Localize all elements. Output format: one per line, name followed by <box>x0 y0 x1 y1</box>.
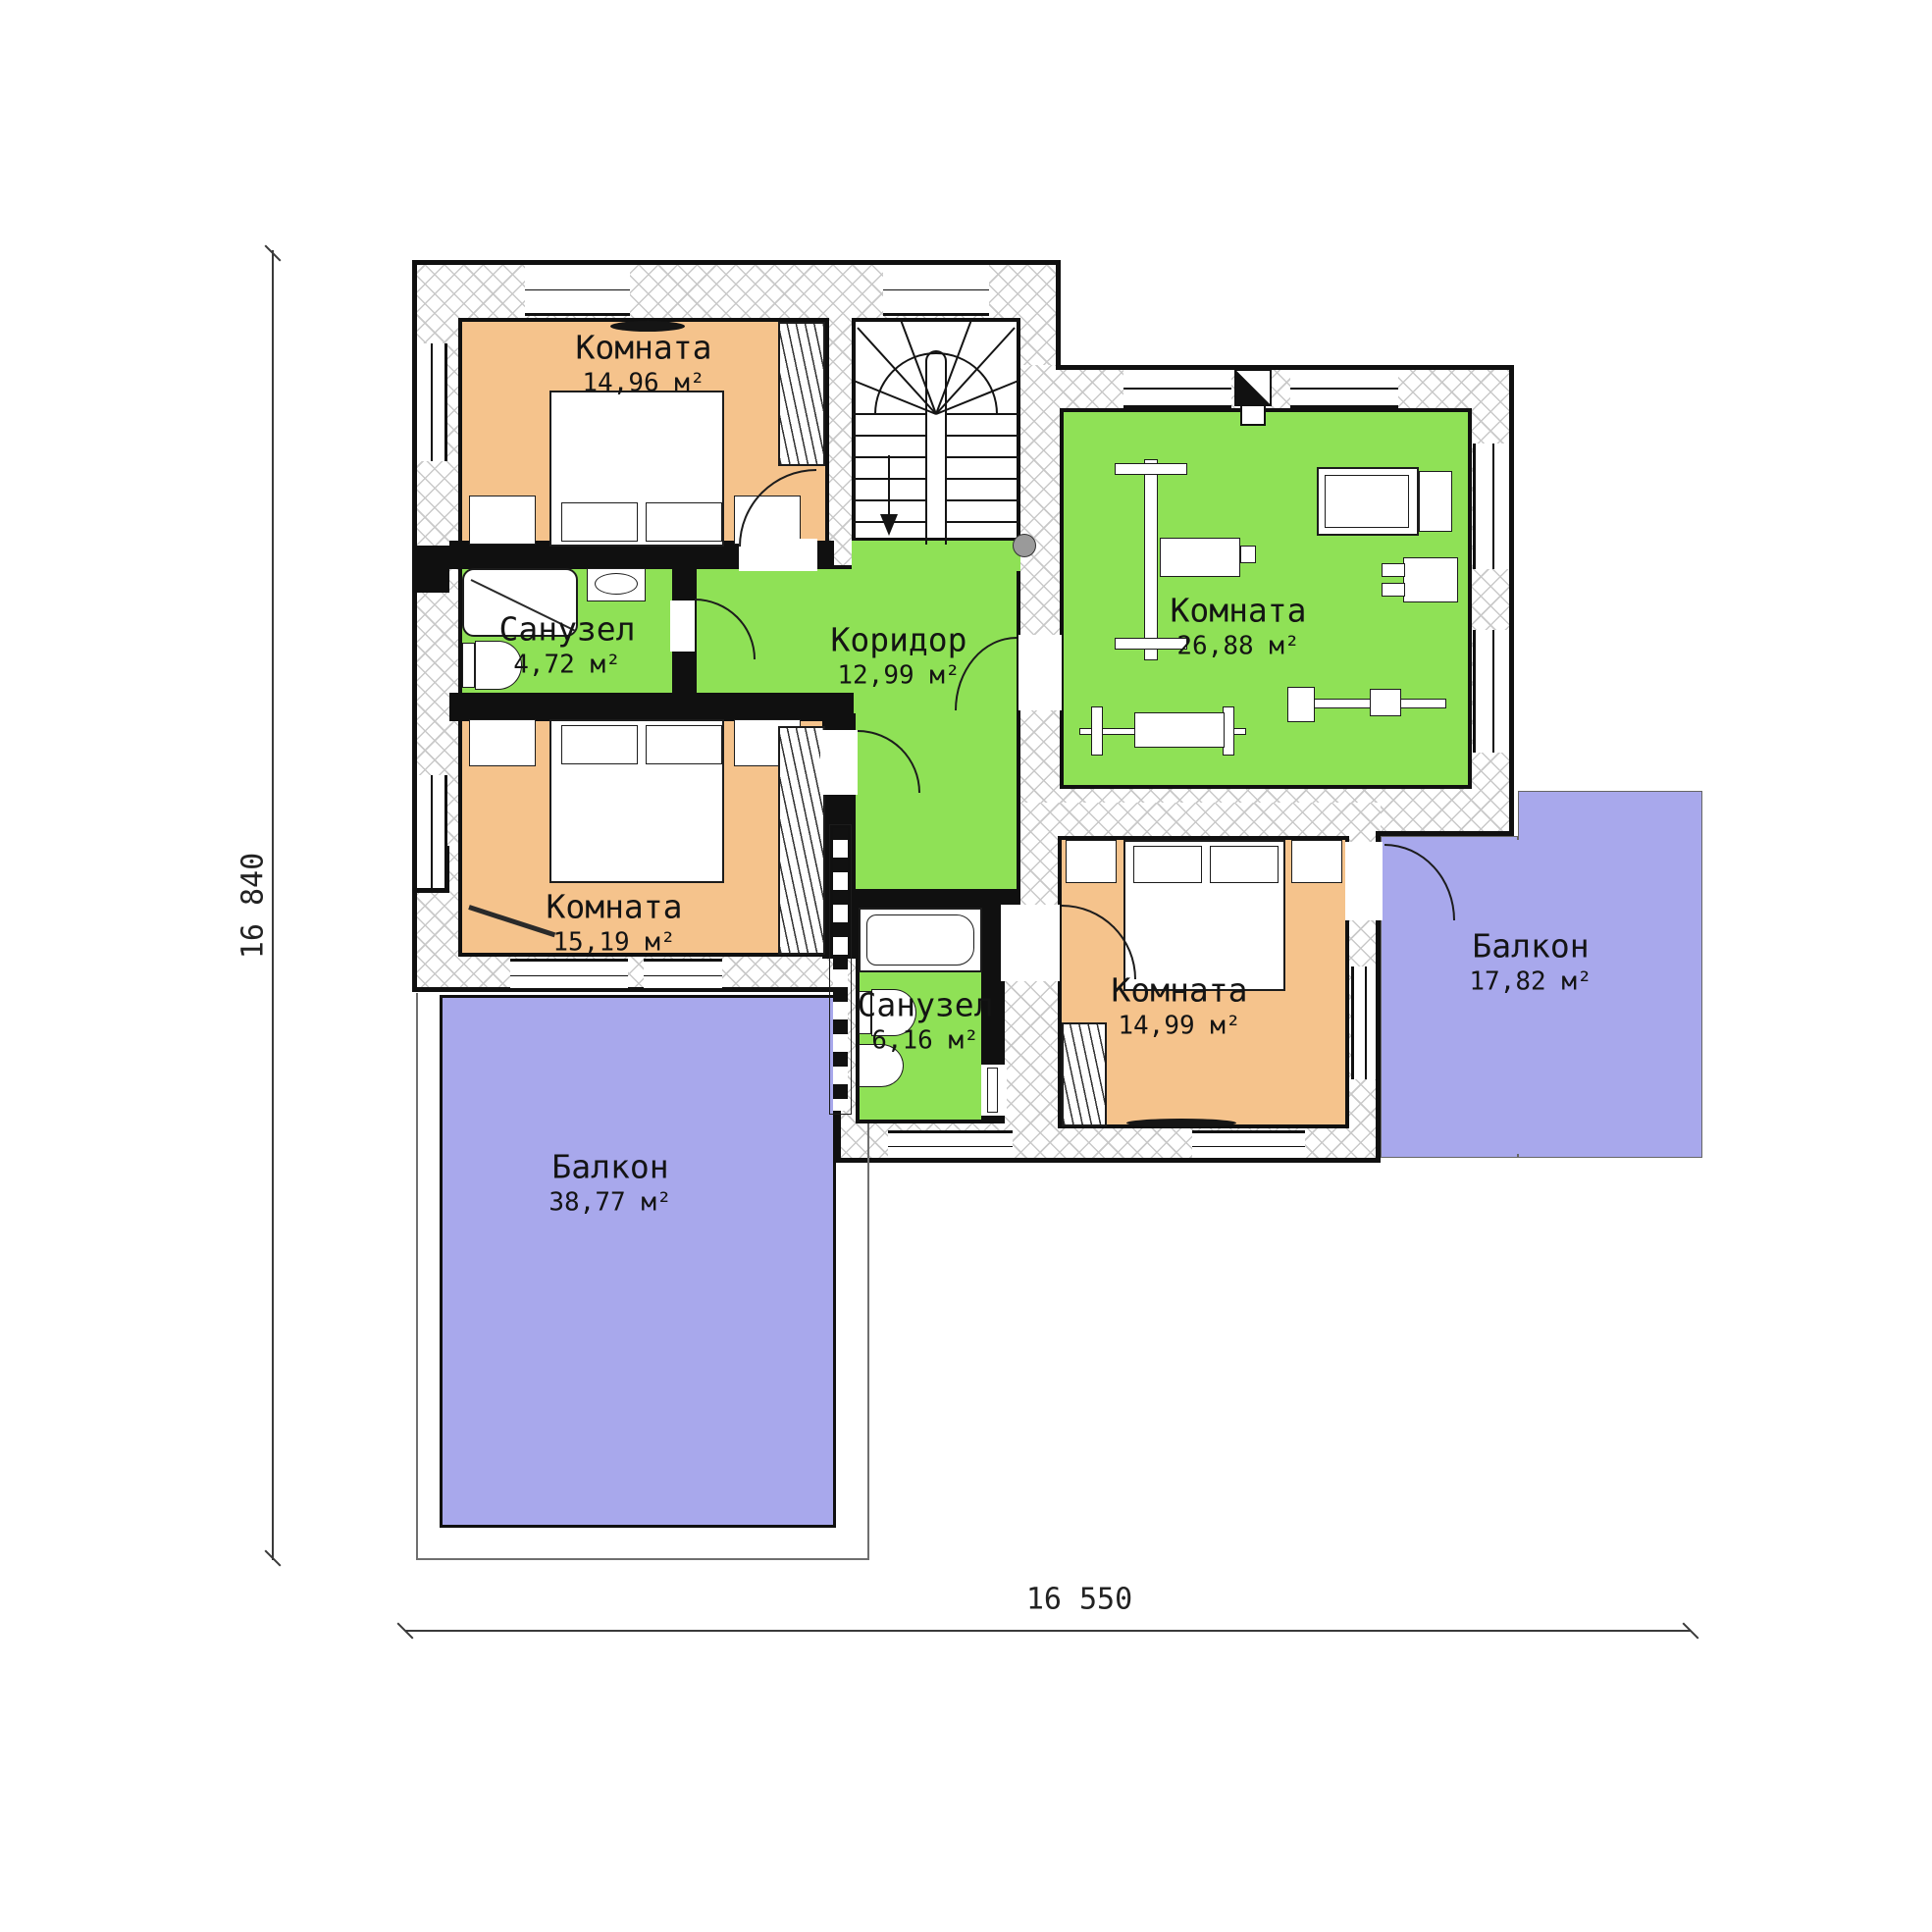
stair-newel-post <box>1013 534 1036 557</box>
room-area: 15,19 м² <box>546 928 682 958</box>
wardrobe-symbol <box>778 322 825 466</box>
room-area-value: 26,88 <box>1176 632 1253 661</box>
wall-pier <box>412 546 449 593</box>
room-area-value: 14,96 <box>582 369 658 398</box>
bed-pillow <box>561 725 638 764</box>
window-symbol <box>414 775 447 888</box>
room-area: 4,72 м² <box>498 651 635 680</box>
room-area-value: 12,99 <box>837 661 914 691</box>
perimeter-wall <box>1509 365 1514 836</box>
perimeter-wall <box>1056 260 1061 368</box>
sink-basin <box>595 573 638 595</box>
room-area: 17,82 м² <box>1469 967 1592 997</box>
room-name: Комната <box>575 329 711 367</box>
wall-shelf-symbol <box>1126 1119 1236 1127</box>
room-area: 14,96 м² <box>575 369 711 398</box>
wardrobe-symbol <box>778 726 825 955</box>
room-area-unit: м² <box>674 369 705 398</box>
room-area-value: 14,99 <box>1118 1012 1194 1041</box>
room-label-bedroom-1: Комната 14,96 м² <box>575 329 711 398</box>
room-area-unit: м² <box>590 651 620 680</box>
nightstand-symbol <box>1291 840 1342 883</box>
room-area: 14,99 м² <box>1111 1012 1247 1041</box>
room-label-bathroom-2: Санузел 6,16 м² <box>857 986 993 1056</box>
room-area-value: 15,19 <box>552 928 629 958</box>
bench-press-plate <box>1091 706 1103 756</box>
room-area-unit: м² <box>929 661 960 691</box>
room-name: Балкон <box>1469 927 1592 966</box>
window-symbol <box>525 262 630 316</box>
window-symbol <box>1290 367 1398 408</box>
room-area: 38,77 м² <box>548 1188 671 1218</box>
bed-pillow <box>646 725 722 764</box>
balcony-left-floor <box>440 995 836 1528</box>
door-opening <box>1345 842 1383 920</box>
bed-pillow <box>561 502 638 542</box>
dimension-label-horizontal: 16 550 <box>1026 1583 1132 1617</box>
room-area-value: 17,82 <box>1469 967 1545 997</box>
stairs-symbol <box>852 318 1020 545</box>
window-symbol <box>883 262 989 316</box>
treadmill-belt <box>1325 475 1409 528</box>
room-area-value: 6,16 <box>871 1026 933 1056</box>
bed-pillow <box>646 502 722 542</box>
door-opening <box>1018 635 1062 710</box>
window-symbol <box>1473 630 1512 753</box>
window-symbol <box>1192 1130 1305 1161</box>
room-label-bathroom-1: Санузел 4,72 м² <box>498 610 635 680</box>
room-name: Комната <box>546 888 682 926</box>
nightstand-symbol <box>1066 840 1117 883</box>
room-name: Коридор <box>830 621 966 659</box>
toilet-tank <box>462 643 475 688</box>
room-area-value: 4,72 <box>513 651 575 680</box>
bathtub-inner <box>866 914 974 966</box>
bed-pillow <box>1210 846 1279 883</box>
room-label-gym: Комната 26,88 м² <box>1170 592 1306 661</box>
partition-wall <box>449 693 854 721</box>
room-name: Комната <box>1111 971 1247 1010</box>
exercise-bike-pedal <box>1382 583 1405 597</box>
room-name: Балкон <box>548 1148 671 1186</box>
room-area-unit: м² <box>645 928 675 958</box>
exercise-bike-pedal <box>1382 563 1405 577</box>
window-symbol <box>1473 444 1512 569</box>
window-symbol <box>888 1130 1013 1161</box>
bed-pillow <box>1133 846 1202 883</box>
floor-plan: Комната 14,96 м² Санузел 4,72 м² Коридор… <box>0 0 1932 1932</box>
door-opening <box>820 730 858 795</box>
room-area-unit: м² <box>1561 967 1592 997</box>
room-area-unit: м² <box>641 1188 671 1218</box>
smith-machine-bar <box>1144 459 1158 660</box>
door-opening <box>670 600 695 652</box>
room-name: Санузел <box>857 986 993 1024</box>
room-name: Комната <box>1170 592 1306 630</box>
door-leaf-symbol <box>987 1068 998 1113</box>
room-area-value: 38,77 <box>548 1188 625 1218</box>
window-symbol <box>414 343 447 461</box>
dimension-label-vertical: 16 840 <box>236 853 271 959</box>
room-label-bedroom-3: Комната 14,99 м² <box>1111 971 1247 1041</box>
window-symbol <box>510 959 628 991</box>
nightstand-symbol <box>469 719 536 766</box>
room-label-balcony-right: Балкон 17,82 м² <box>1469 927 1592 997</box>
vent-duct <box>1240 406 1266 426</box>
nightstand-symbol <box>469 496 536 545</box>
service-shaft-symbol <box>829 824 852 1115</box>
room-name: Санузел <box>498 610 635 649</box>
vent-shaft-icon <box>1234 369 1272 406</box>
room-area-unit: м² <box>1269 632 1299 661</box>
rowing-machine-seat <box>1370 689 1401 716</box>
room-label-balcony-left: Балкон 38,77 м² <box>548 1148 671 1218</box>
corridor-join <box>856 709 1017 723</box>
room-label-corridor: Коридор 12,99 м² <box>830 621 966 691</box>
bench-press-bench <box>1134 712 1225 748</box>
room-area-unit: м² <box>948 1026 978 1056</box>
exercise-bike-symbol <box>1403 557 1458 602</box>
smith-machine-bench <box>1160 538 1240 577</box>
dimension-line-horizontal <box>405 1630 1691 1632</box>
corridor-join <box>856 561 1017 573</box>
room-area: 12,99 м² <box>830 661 966 691</box>
balcony-door-symbol <box>644 959 722 991</box>
balcony-right-floor-join <box>1513 840 1525 1154</box>
room-area-unit: м² <box>1210 1012 1240 1041</box>
dimension-line-vertical <box>272 250 274 1560</box>
room-area: 6,16 м² <box>857 1026 993 1056</box>
door-opening <box>1001 905 1060 981</box>
room-label-bedroom-2: Комната 15,19 м² <box>546 888 682 958</box>
wardrobe-symbol <box>1062 1022 1107 1126</box>
smith-machine-foot <box>1240 546 1256 563</box>
stairs-drawing <box>852 318 1020 545</box>
smith-machine-crossbar <box>1115 463 1187 475</box>
window-symbol <box>1351 966 1379 1079</box>
treadmill-console <box>1419 471 1452 532</box>
room-area: 26,88 м² <box>1170 632 1306 661</box>
window-symbol <box>1123 367 1231 408</box>
rowing-machine-head <box>1287 687 1315 722</box>
